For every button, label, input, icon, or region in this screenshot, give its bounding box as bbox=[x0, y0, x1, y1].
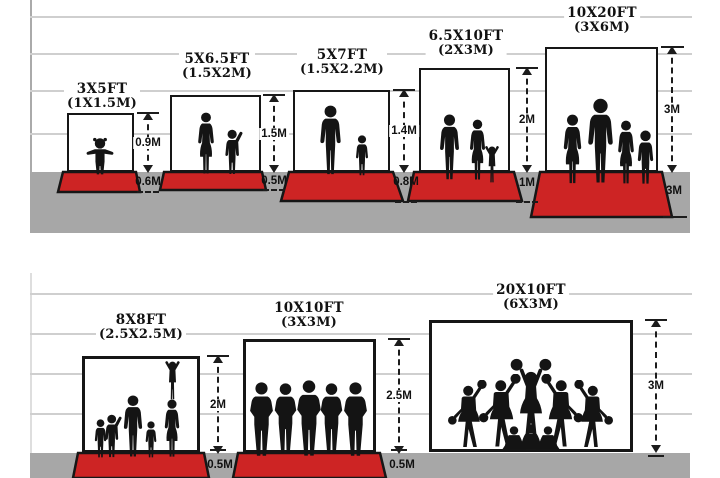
floor-depth-label: 0.5M bbox=[261, 175, 287, 187]
height-dimension-label: 2M bbox=[517, 114, 537, 126]
floor-tick bbox=[395, 201, 417, 205]
wall-line-bottom bbox=[30, 273, 32, 453]
size-label-ft: 5X7FT bbox=[300, 48, 384, 63]
size-label-ft: 10X10FT bbox=[274, 301, 344, 316]
silhouette-cheerleader-icon bbox=[574, 380, 613, 452]
height-dimension-label: 0.9M bbox=[133, 137, 163, 149]
silhouette-sitting-person-icon bbox=[535, 426, 561, 452]
silhouette-athlete-icon bbox=[338, 382, 373, 458]
panel-10x10ft-title: 10X10FT (3X3M) bbox=[271, 301, 347, 330]
size-label-ft: 3X5FT bbox=[67, 82, 137, 97]
height-dimension-label: 1.5M bbox=[259, 128, 289, 140]
floor-depth-label: 3M bbox=[666, 185, 682, 197]
floor-tick bbox=[391, 449, 407, 451]
silhouette-boy-icon bbox=[634, 130, 657, 186]
floor-depth-label: 0.8M bbox=[393, 176, 419, 188]
floor-tick bbox=[663, 216, 687, 218]
floor-tick bbox=[137, 191, 159, 195]
size-label-m: (3X3M) bbox=[274, 316, 344, 330]
panel-8x8ft-title: 8X8FT (2.5X2.5M) bbox=[96, 313, 186, 342]
size-label-m: (2.5X2.5M) bbox=[99, 328, 183, 342]
height-dimension-label: 2M bbox=[208, 399, 228, 411]
floor-depth-label: 1M bbox=[519, 177, 535, 189]
height-dimension-label: 2.5M bbox=[384, 390, 414, 402]
height-dimension-label: 1.4M bbox=[389, 125, 419, 137]
silhouette-man-icon bbox=[436, 114, 463, 182]
size-label-ft: 20X10FT bbox=[496, 283, 566, 298]
floor-tick bbox=[648, 455, 664, 457]
panel-3x5ft-title: 3X5FT (1X1.5M) bbox=[64, 82, 140, 111]
size-label-m: (6X3M) bbox=[496, 298, 566, 312]
size-label-ft: 6.5X10FT bbox=[429, 29, 504, 44]
size-comparison-diagram: 3X5FT (1X1.5M) 0.9M 0.6M 5X6.5FT (1.5X2M… bbox=[0, 0, 720, 478]
silhouette-child-waving-icon bbox=[222, 128, 245, 176]
size-label-m: (1.5X2M) bbox=[182, 67, 252, 81]
silhouette-woman-icon bbox=[160, 399, 184, 459]
floor-depth-label: 0.6M bbox=[135, 176, 161, 188]
panel-5x6-5ft-title: 5X6.5FT (1.5X2M) bbox=[179, 52, 255, 81]
silhouette-boy-icon bbox=[353, 135, 371, 177]
silhouette-toddler-icon bbox=[85, 137, 115, 177]
size-label-m: (1.5X2.2M) bbox=[300, 63, 384, 77]
size-label-ft: 5X6.5FT bbox=[182, 52, 252, 67]
silhouette-child-on-shoulders-icon bbox=[162, 359, 183, 401]
floor-depth-label: 0.5M bbox=[207, 459, 233, 471]
height-dimension-label: 3M bbox=[646, 380, 666, 392]
floor-tick bbox=[210, 449, 226, 451]
panel-20x10ft-title: 20X10FT (6X3M) bbox=[493, 283, 569, 312]
guide-line bbox=[30, 293, 692, 295]
silhouette-child-icon bbox=[143, 421, 159, 459]
size-label-ft: 10X20FT bbox=[567, 6, 637, 21]
silhouette-woman-icon bbox=[193, 112, 219, 176]
floor-tick bbox=[263, 189, 285, 193]
size-label-m: (3X6M) bbox=[567, 21, 637, 35]
size-label-m: (2X3M) bbox=[429, 44, 504, 58]
size-label-m: (1X1.5M) bbox=[67, 97, 137, 111]
height-dimension-label: 3M bbox=[662, 104, 682, 116]
silhouette-child-cheering-icon bbox=[482, 144, 502, 184]
panel-6-5x10ft-title: 6.5X10FT (2X3M) bbox=[426, 29, 507, 58]
floor-depth-label: 0.5M bbox=[389, 459, 415, 471]
panel-10x20ft-title: 10X20FT (3X6M) bbox=[564, 6, 640, 35]
silhouette-man-icon bbox=[316, 105, 345, 177]
panel-5x7ft-title: 5X7FT (1.5X2.2M) bbox=[297, 48, 387, 77]
size-label-ft: 8X8FT bbox=[99, 313, 183, 328]
floor-tick bbox=[516, 201, 538, 205]
